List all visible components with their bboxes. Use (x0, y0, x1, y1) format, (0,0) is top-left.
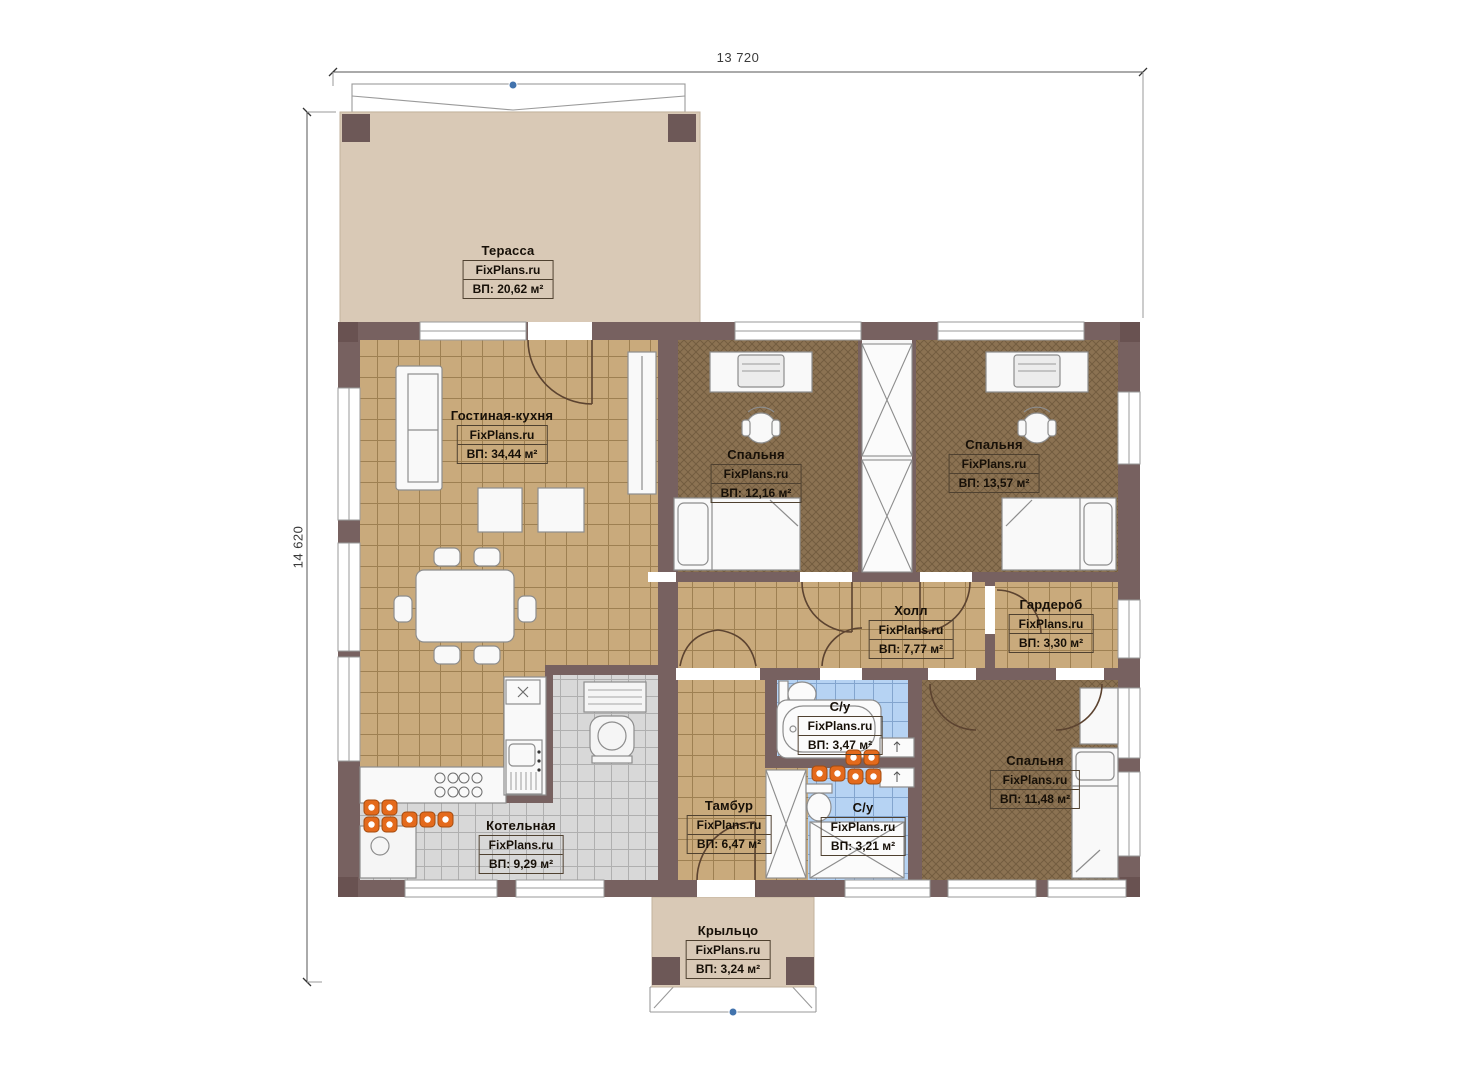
printer-icon (1014, 355, 1060, 387)
room-label-boiler-room: Котельная FixPlans.ru ВП: 9,29 м² (479, 819, 564, 874)
brand-label: FixPlans.ru (712, 465, 801, 484)
door-opening (985, 586, 995, 634)
porch-column (652, 957, 680, 985)
brand-label: FixPlans.ru (991, 771, 1079, 790)
boiler-unit-icon (584, 682, 646, 712)
sofa (396, 366, 442, 490)
brand-label: FixPlans.ru (688, 816, 771, 835)
room-area: ВП: 3,47 м² (799, 736, 882, 754)
brand-label: FixPlans.ru (799, 717, 882, 736)
tall-cabinet (628, 352, 656, 494)
room-name: С/у (798, 700, 883, 714)
dimension-height: 14 620 (291, 526, 306, 569)
window (338, 657, 360, 761)
brand-label: FixPlans.ru (464, 261, 553, 280)
room-name: Гардероб (1009, 598, 1094, 612)
room-name: Крыльцо (686, 924, 771, 938)
room-area: ВП: 3,24 м² (687, 960, 770, 978)
brand-label: FixPlans.ru (1010, 615, 1093, 634)
room-name: Холл (869, 604, 954, 618)
bed (674, 498, 800, 570)
door-opening (648, 572, 676, 582)
room-name: Гостиная-кухня (451, 409, 553, 423)
room-name: Терасса (463, 244, 554, 258)
room-area: ВП: 6,47 м² (688, 835, 771, 853)
dining-chair (474, 646, 500, 664)
door-opening (1056, 668, 1104, 680)
window (948, 880, 1036, 897)
brand-label: FixPlans.ru (687, 941, 770, 960)
room-label-bedroom-3: Спальня FixPlans.ru ВП: 11,48 м² (990, 754, 1080, 809)
room-area: ВП: 13,57 м² (950, 474, 1039, 492)
window (1118, 772, 1140, 856)
room-name: Спальня (990, 754, 1080, 768)
window (338, 543, 360, 651)
cabinet (880, 738, 914, 757)
window (420, 322, 526, 340)
door-opening (920, 572, 972, 582)
window (405, 880, 497, 897)
door-opening (800, 572, 852, 582)
window (938, 322, 1084, 340)
room-name: Спальня (949, 438, 1040, 452)
door-opening-terrace (528, 322, 592, 340)
room-label-living-kitchen: Гостиная-кухня FixPlans.ru ВП: 34,44 м² (451, 409, 553, 464)
room-label-vestibule: Тамбур FixPlans.ru ВП: 6,47 м² (687, 799, 772, 854)
window (845, 880, 930, 897)
window (735, 322, 861, 340)
door-opening (928, 668, 976, 680)
dimension-width: 13 720 (717, 50, 760, 65)
room-label-terrace: Терасса FixPlans.ru ВП: 20,62 м² (463, 244, 554, 299)
room-area: ВП: 20,62 м² (464, 280, 553, 298)
terrace-column (668, 114, 696, 142)
brand-label: FixPlans.ru (950, 455, 1039, 474)
room-label-bathroom-2: С/у FixPlans.ru ВП: 3,21 м² (821, 801, 906, 856)
room-label-bedroom-1: Спальня FixPlans.ru ВП: 12,16 м² (711, 448, 802, 503)
terrace-column (342, 114, 370, 142)
dining-table (416, 570, 514, 642)
room-label-porch: Крыльцо FixPlans.ru ВП: 3,24 м² (686, 924, 771, 979)
brand-label: FixPlans.ru (822, 818, 905, 837)
dining-chair (394, 596, 412, 622)
kitchen-sink-icon (506, 740, 542, 794)
brand-label: FixPlans.ru (458, 426, 547, 445)
room-label-wardrobe: Гардероб FixPlans.ru ВП: 3,30 м² (1009, 598, 1094, 653)
coffee-table (538, 488, 584, 532)
dining-chair (474, 548, 500, 566)
hob-icon (506, 680, 540, 704)
kitchen-counter (360, 767, 506, 803)
brand-label: FixPlans.ru (870, 621, 953, 640)
roof-ridge-marker-dot (509, 81, 517, 89)
room-label-bathroom-1: С/у FixPlans.ru ВП: 3,47 м² (798, 700, 883, 755)
room-area: ВП: 11,48 м² (991, 790, 1079, 808)
pump-box-icon (360, 826, 416, 878)
floor-plan-drawing (0, 0, 1474, 1080)
window (338, 388, 360, 520)
door-opening (676, 668, 760, 680)
porch-ridge-marker-dot (729, 1008, 737, 1016)
window (1048, 880, 1126, 897)
door-opening-entrance (697, 880, 755, 897)
room-name: С/у (821, 801, 906, 815)
room-area: ВП: 3,21 м² (822, 837, 905, 855)
room-area: ВП: 12,16 м² (712, 484, 801, 502)
brand-label: FixPlans.ru (480, 836, 563, 855)
floor-plan-page: 13 720 14 620 Терасса FixPlans.ru ВП: 20… (0, 0, 1474, 1080)
porch-column (786, 957, 814, 985)
room-area: ВП: 7,77 м² (870, 640, 953, 658)
coffee-table (478, 488, 522, 532)
closet-icon (766, 770, 806, 878)
room-name: Тамбур (687, 799, 772, 813)
window (1118, 688, 1140, 758)
dining-chair (434, 548, 460, 566)
dining-chair (434, 646, 460, 664)
door-opening (820, 668, 862, 680)
room-area: ВП: 3,30 м² (1010, 634, 1093, 652)
closet-icon (862, 460, 912, 572)
bed (1002, 498, 1116, 570)
printer-icon (738, 355, 784, 387)
room-label-hall: Холл FixPlans.ru ВП: 7,77 м² (869, 604, 954, 659)
room-label-bedroom-2: Спальня FixPlans.ru ВП: 13,57 м² (949, 438, 1040, 493)
cabinet (880, 768, 914, 787)
window (516, 880, 604, 897)
room-name: Спальня (711, 448, 802, 462)
window (1118, 600, 1140, 658)
closet-icon (862, 344, 912, 456)
dining-chair (518, 596, 536, 622)
room-area: ВП: 9,29 м² (480, 855, 563, 873)
window (1118, 392, 1140, 464)
room-area: ВП: 34,44 м² (458, 445, 547, 463)
nightstand (1080, 688, 1118, 744)
room-name: Котельная (479, 819, 564, 833)
terrace-roof-outline (352, 81, 685, 112)
water-tank-icon (590, 716, 634, 763)
